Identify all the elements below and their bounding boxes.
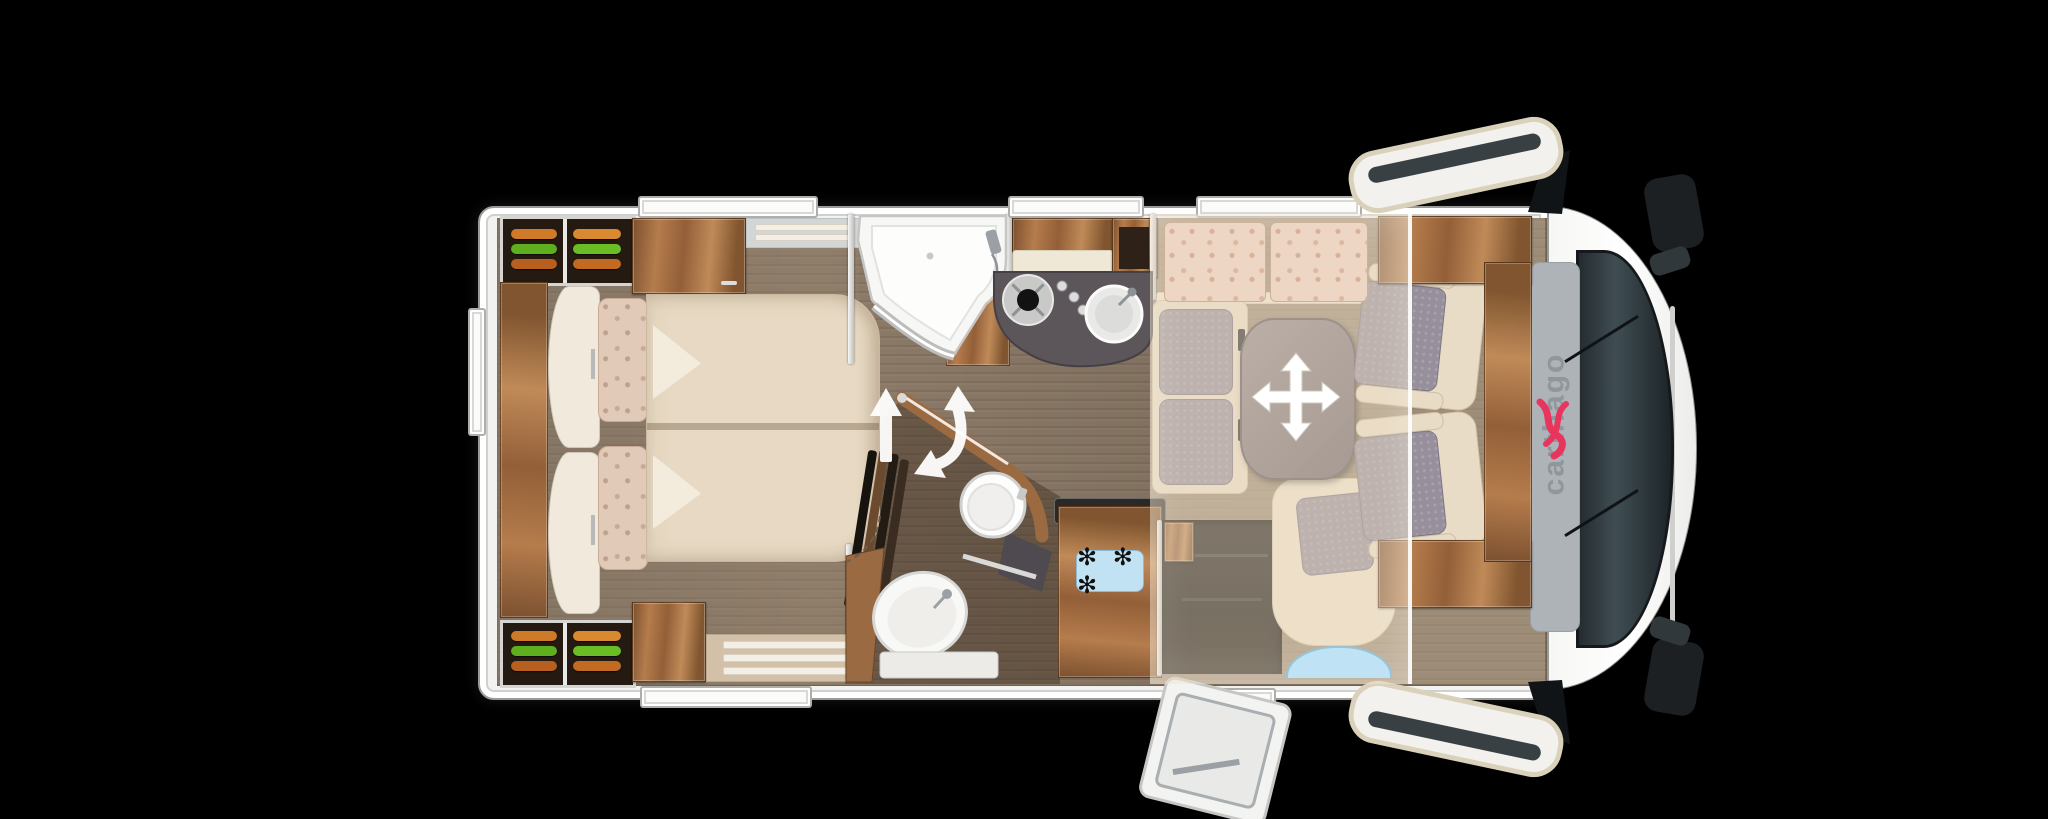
clothes-hanger (511, 661, 557, 671)
blind-slat (755, 224, 851, 231)
clothes-hanger (511, 259, 557, 269)
window-bottom-bedroom (640, 686, 812, 708)
front-wheel-bottom (1642, 636, 1706, 718)
kitchen-pelmet-shelf (1012, 250, 1114, 274)
clothes-hanger (573, 244, 621, 254)
headboard-panel-upper (548, 286, 600, 448)
front-wheel-top (1642, 172, 1706, 254)
wardrobe-divider (563, 623, 567, 685)
clothes-hanger (573, 646, 621, 656)
step-tread (723, 667, 851, 675)
wardrobe-divider (563, 219, 567, 283)
window-sill-top-bed (746, 218, 860, 248)
clothes-hanger (511, 244, 557, 254)
bed-headboard-wall (500, 282, 548, 618)
window-rear (468, 308, 486, 436)
cabinet-handle (721, 281, 737, 285)
wall-shower-left (848, 214, 854, 364)
cab-surround-column (1484, 262, 1532, 562)
blind-slat (755, 234, 851, 241)
wardrobe-rear-top (500, 216, 636, 286)
motorhome-floorplan-canvas: carthago (0, 0, 2048, 819)
snowflake-icons: ✻ ✻ ✻ (1077, 543, 1143, 599)
clothes-hanger (511, 646, 557, 656)
headboard-panel-lower (548, 452, 600, 614)
entry-door-window (1170, 688, 1276, 706)
step-tread (723, 641, 851, 649)
overhead-cabinet-top (632, 218, 746, 294)
clothes-hanger (573, 259, 621, 269)
window-top-bedroom (638, 196, 818, 218)
bed-step-carpet (706, 634, 866, 682)
cubby-opening (1119, 227, 1149, 269)
queen-bed (646, 294, 880, 562)
duvet-fold-bottom (653, 455, 701, 529)
door-handle (1173, 747, 1239, 787)
clothes-hanger (573, 661, 621, 671)
panel-handle (591, 349, 595, 379)
panel-handle (591, 515, 595, 545)
clothes-hanger (511, 631, 557, 641)
towel-rail (951, 301, 957, 355)
overhead-cabinet-bottom (632, 602, 706, 682)
clothes-hanger (573, 631, 621, 641)
bed-pillow-bottom (598, 446, 648, 570)
brand-emblem-icon (1532, 396, 1576, 460)
freezer-rating-badge: ✻ ✻ ✻ (1076, 550, 1144, 592)
duvet-fold-top (653, 325, 701, 399)
mirror-top (1346, 115, 1570, 216)
mirror-arm (1528, 150, 1570, 214)
clothes-hanger (573, 229, 621, 239)
dropdown-bed-pillow-right (1270, 222, 1368, 302)
headlight-top (1648, 244, 1693, 277)
wall-shower-right (1006, 214, 1012, 278)
window-top-kitchen (1008, 196, 1144, 218)
wall-washroom-left (846, 544, 852, 680)
step-tread (723, 654, 851, 662)
clothes-hanger (511, 229, 557, 239)
bed-pillow-top (598, 298, 648, 422)
mirror-glass (1367, 710, 1542, 762)
mattress-gap (647, 423, 879, 430)
dropdown-bed-pillow-left (1164, 222, 1266, 302)
wardrobe-rear-bottom (500, 620, 636, 688)
mirror-glass (1367, 132, 1542, 184)
